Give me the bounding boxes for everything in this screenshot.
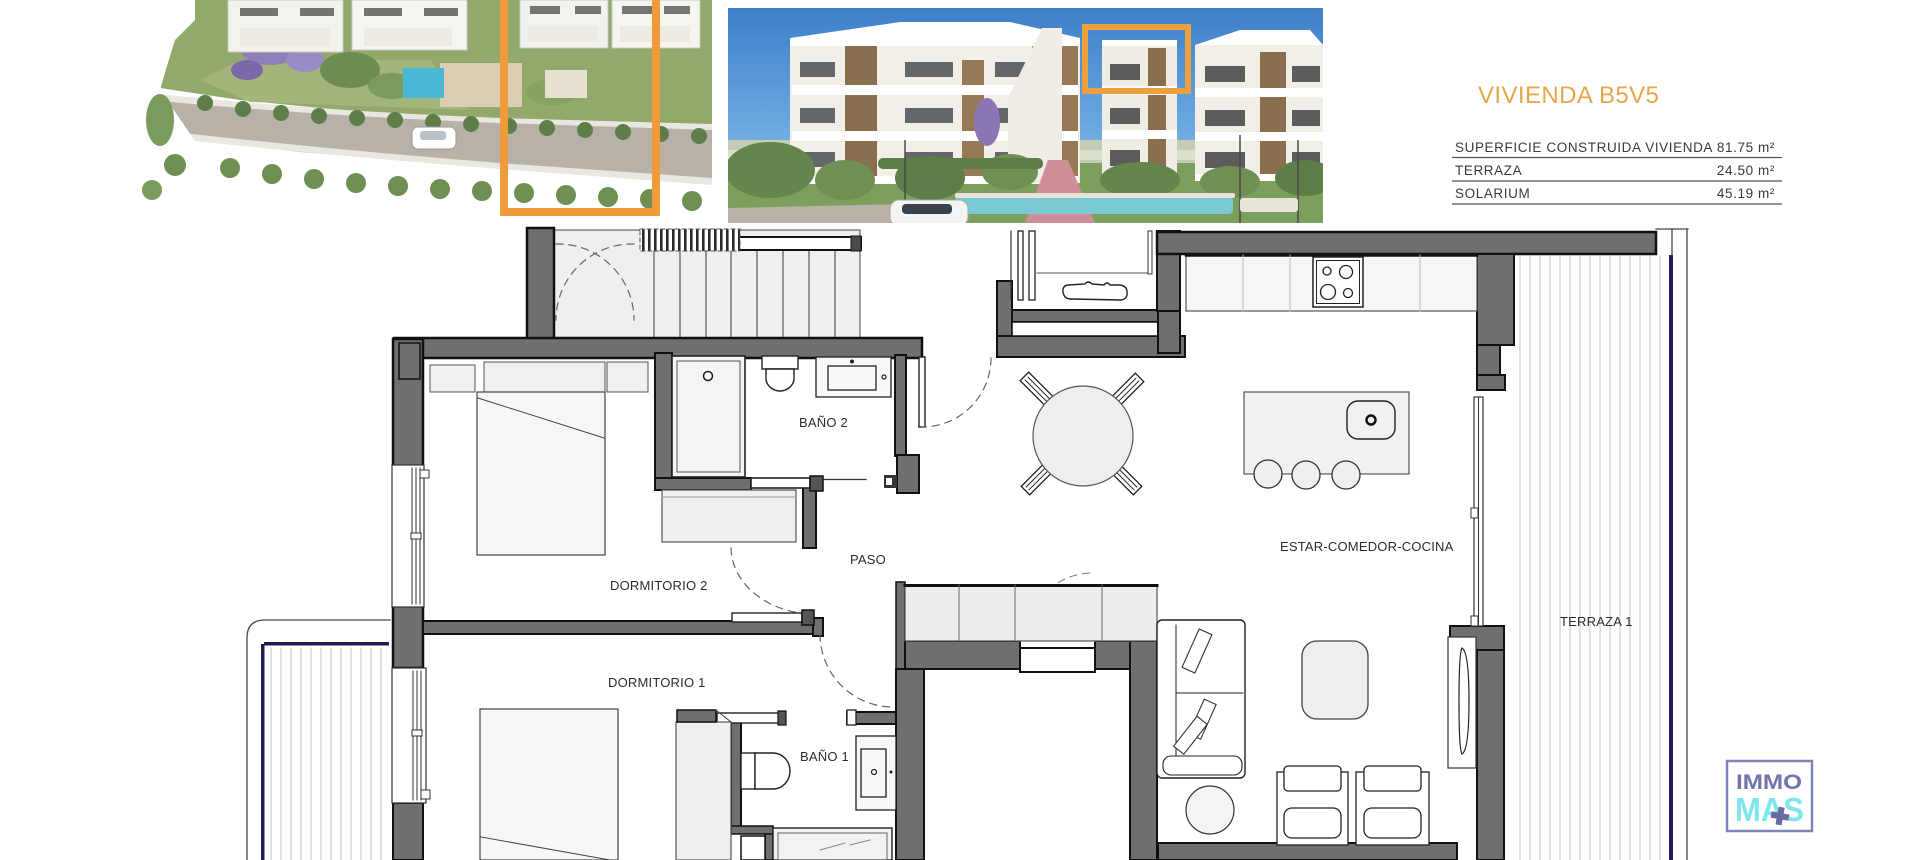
svg-text:VIVIENDA B5V5: VIVIENDA B5V5: [1478, 82, 1659, 109]
svg-text:BAÑO 2: BAÑO 2: [799, 415, 848, 430]
svg-text:SOLARIUM: SOLARIUM: [1455, 186, 1530, 201]
svg-text:45.19 m²: 45.19 m²: [1717, 186, 1775, 201]
svg-text:BAÑO 1: BAÑO 1: [800, 749, 849, 764]
svg-text:DORMITORIO 2: DORMITORIO 2: [610, 578, 708, 593]
svg-text:PASO: PASO: [850, 552, 886, 567]
svg-text:TERRAZA 1: TERRAZA 1: [1560, 614, 1633, 629]
svg-text:ESTAR-COMEDOR-COCINA: ESTAR-COMEDOR-COCINA: [1280, 539, 1454, 554]
svg-text:81.75 m²: 81.75 m²: [1717, 140, 1775, 155]
svg-text:24.50 m²: 24.50 m²: [1717, 163, 1775, 178]
svg-text:SUPERFICIE CONSTRUIDA VIVIENDA: SUPERFICIE CONSTRUIDA VIVIENDA: [1455, 140, 1713, 155]
svg-text:DORMITORIO 1: DORMITORIO 1: [608, 675, 706, 690]
svg-text:MAS: MAS: [1735, 791, 1804, 828]
svg-text:TERRAZA: TERRAZA: [1455, 163, 1522, 178]
